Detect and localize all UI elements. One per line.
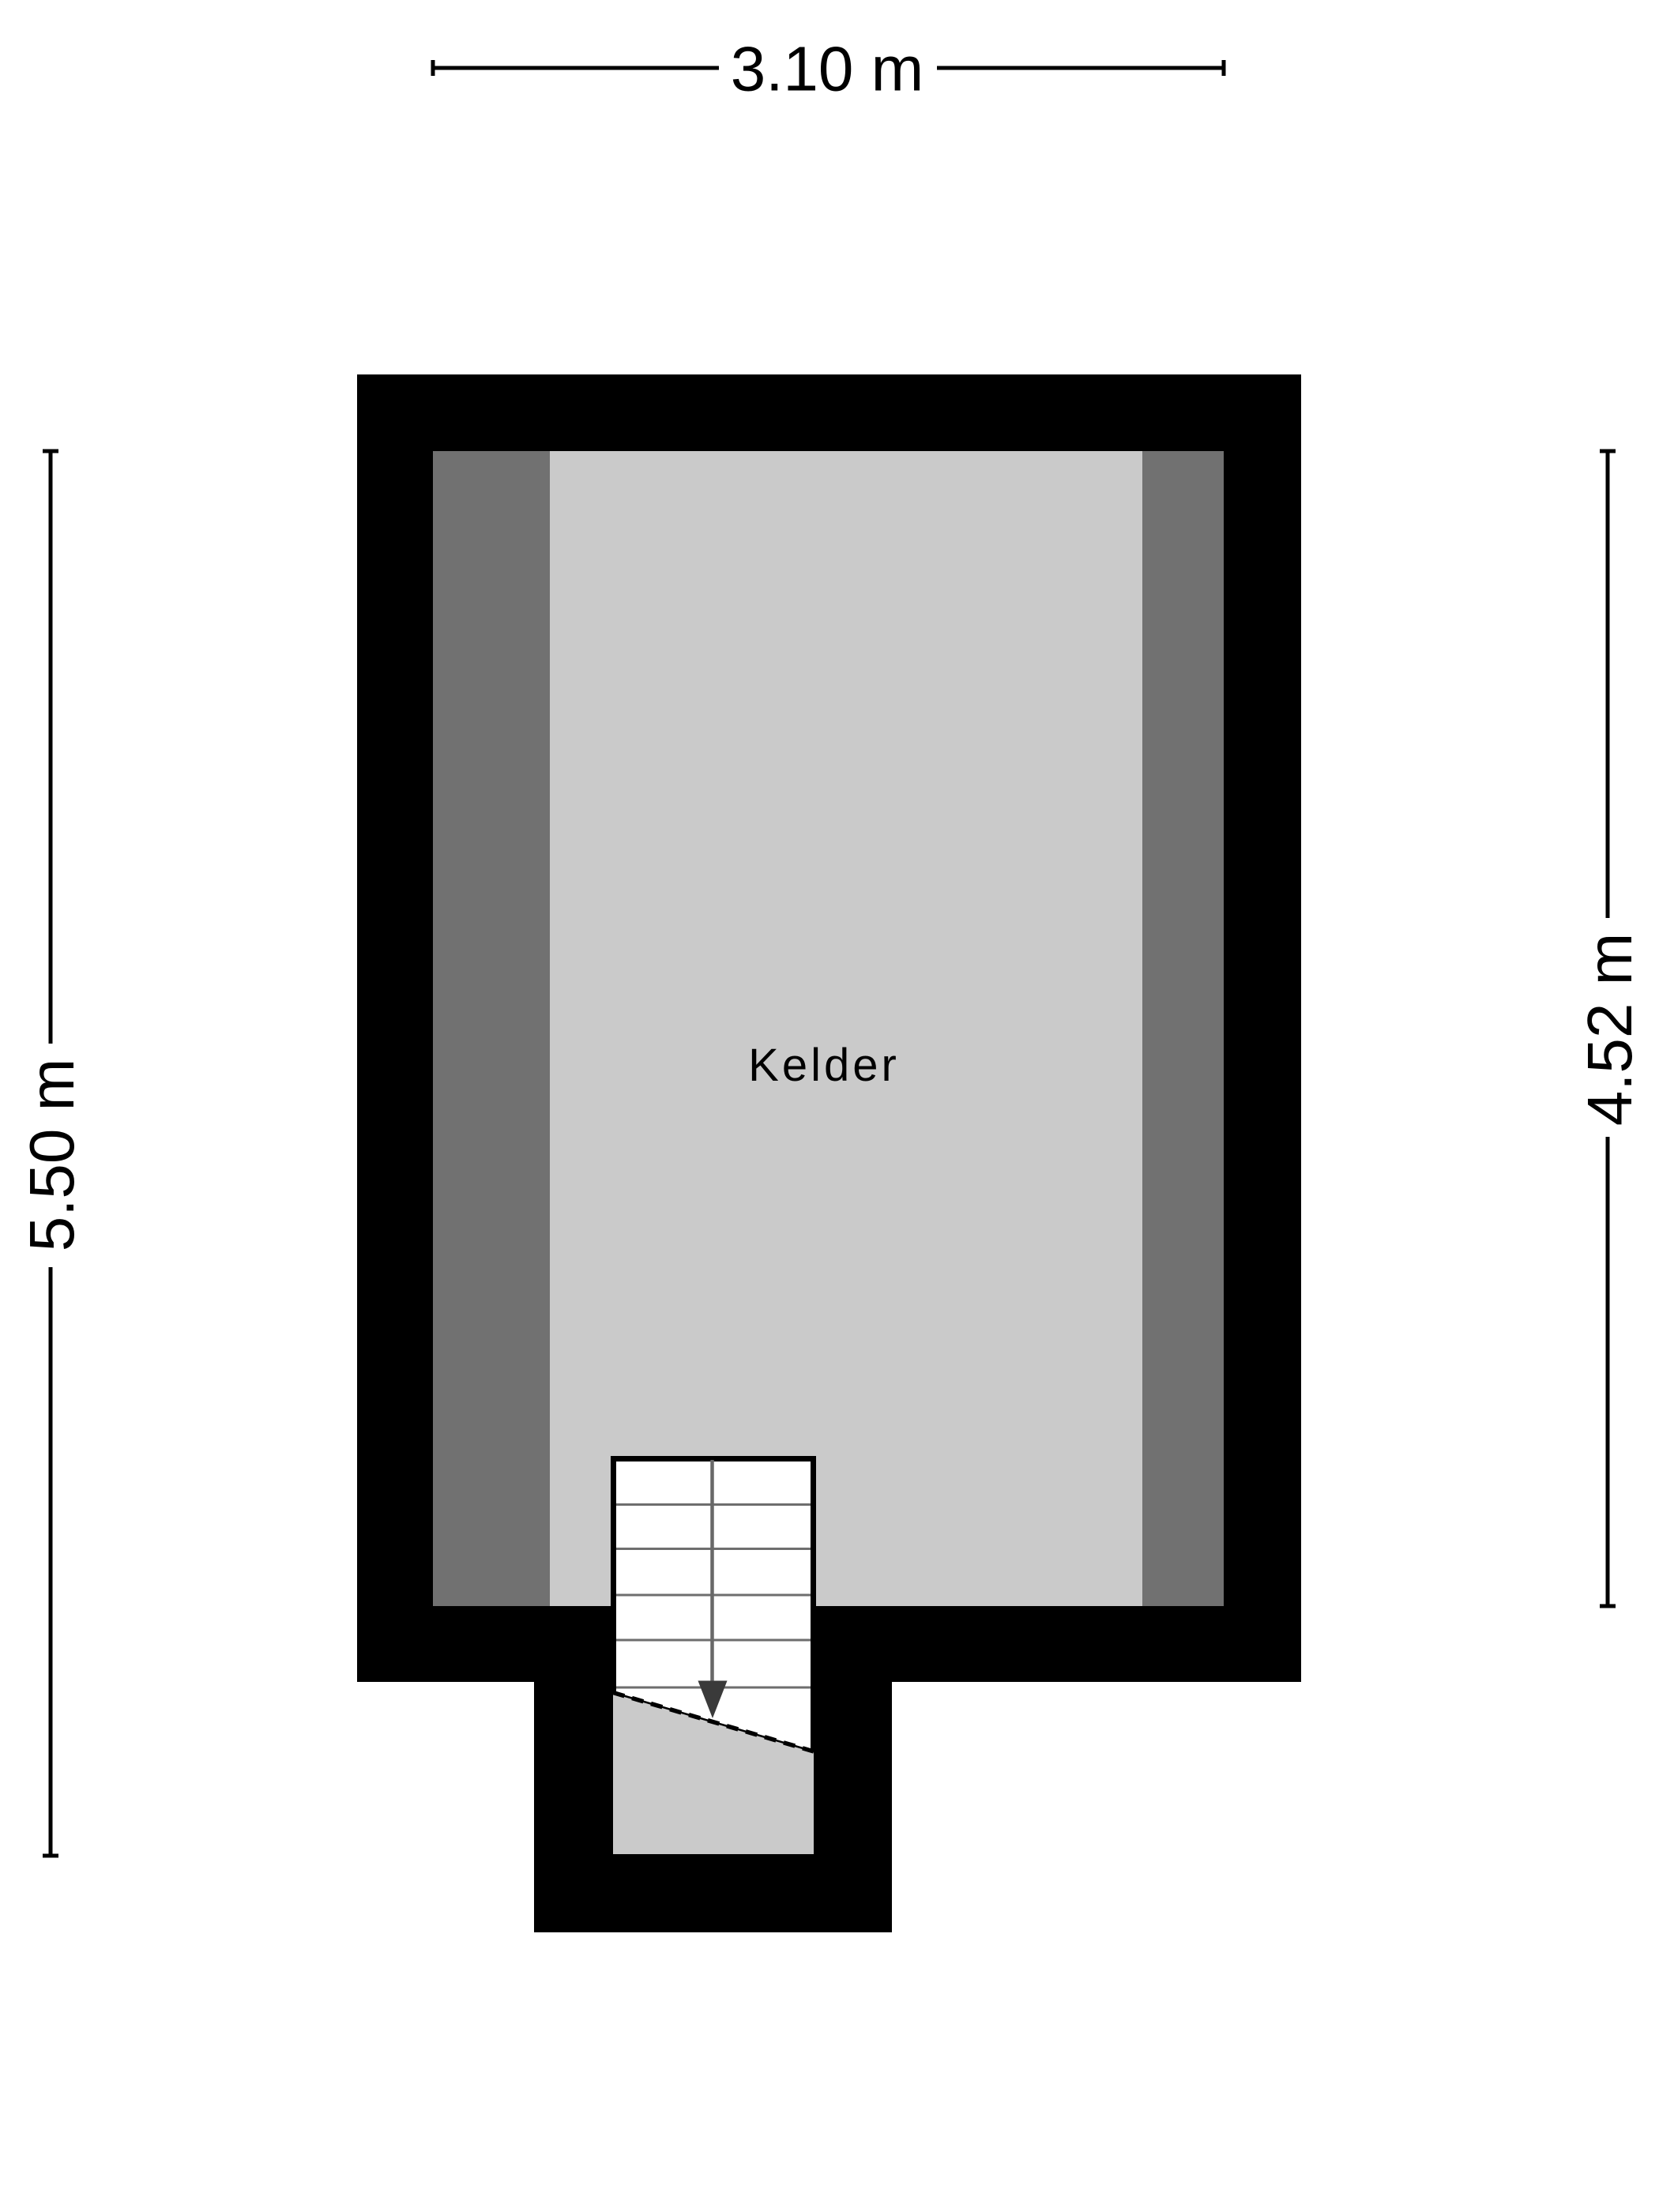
svg-text:Kelder: Kelder — [748, 1040, 900, 1091]
svg-text:3.10 m: 3.10 m — [731, 34, 924, 104]
svg-text:4.52 m: 4.52 m — [1574, 933, 1645, 1127]
svg-text:5.50 m: 5.50 m — [17, 1059, 87, 1252]
